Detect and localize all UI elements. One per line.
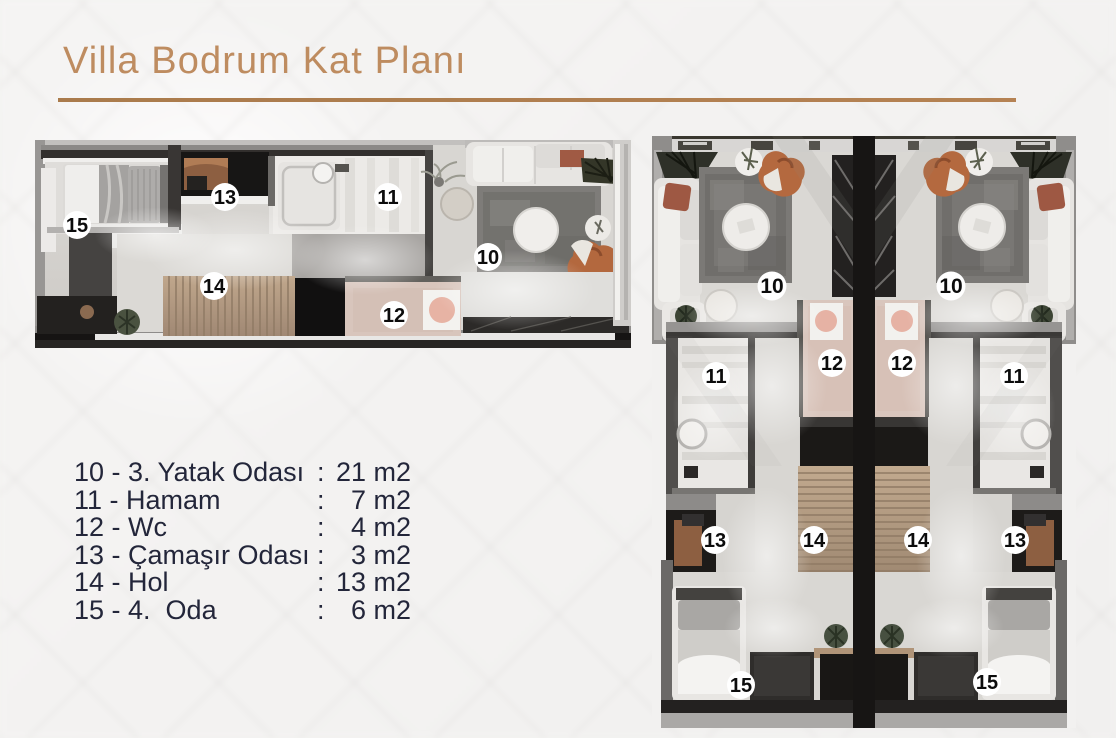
svg-text:14: 14 — [907, 530, 930, 552]
svg-text:10: 10 — [760, 275, 783, 298]
svg-text:10: 10 — [939, 275, 962, 298]
svg-text:11: 11 — [377, 187, 398, 209]
svg-text:14: 14 — [803, 530, 826, 552]
svg-text:12: 12 — [891, 353, 913, 375]
svg-text:15: 15 — [66, 215, 88, 237]
svg-text:14: 14 — [203, 276, 226, 298]
svg-text:11: 11 — [705, 366, 726, 388]
svg-text:11: 11 — [1003, 366, 1024, 388]
svg-text:13: 13 — [1004, 530, 1026, 552]
svg-text:13: 13 — [214, 187, 236, 209]
svg-text:10: 10 — [477, 247, 499, 269]
svg-text:15: 15 — [976, 672, 998, 694]
svg-text:15: 15 — [730, 675, 752, 697]
svg-text:12: 12 — [383, 305, 405, 327]
svg-text:13: 13 — [704, 530, 726, 552]
svg-text:12: 12 — [821, 353, 843, 375]
